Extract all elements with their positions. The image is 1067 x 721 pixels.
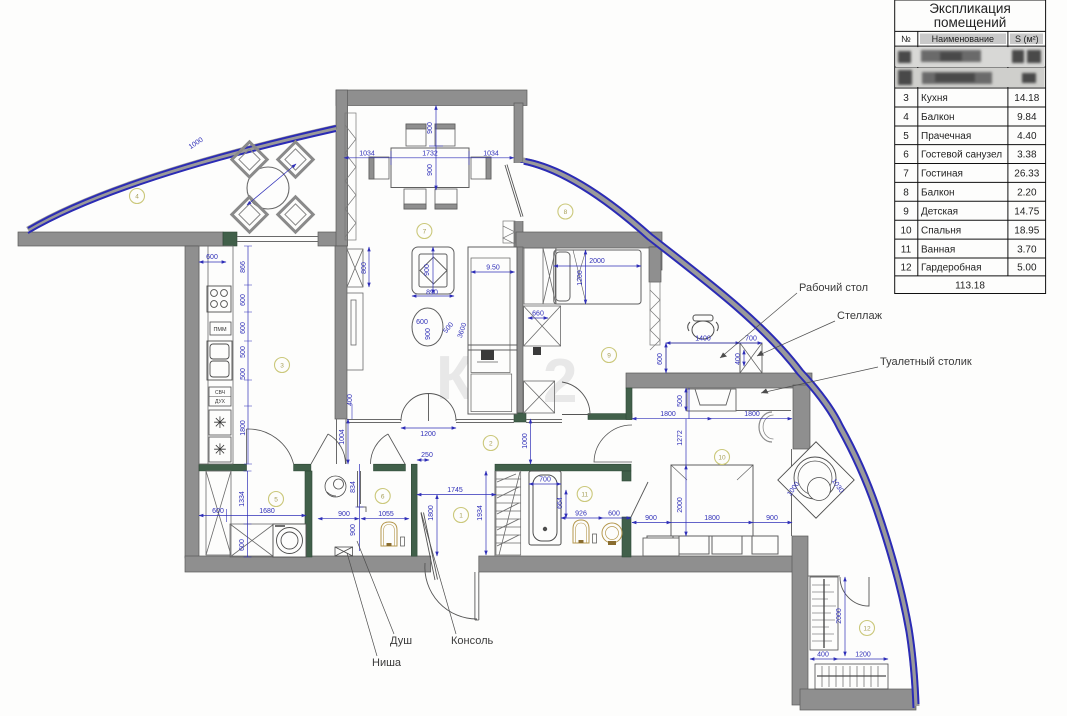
- svg-text:800: 800: [361, 262, 368, 274]
- svg-text:СВЧ: СВЧ: [215, 390, 225, 396]
- svg-text:1800: 1800: [428, 505, 435, 521]
- svg-text:ПММ: ПММ: [213, 327, 227, 333]
- svg-text:4: 4: [135, 194, 139, 201]
- svg-text:1200: 1200: [577, 270, 584, 286]
- svg-text:✳: ✳: [213, 415, 226, 432]
- svg-text:Наименование: Наименование: [932, 34, 994, 44]
- svg-text:2: 2: [489, 441, 493, 448]
- svg-text:900: 900: [350, 524, 357, 536]
- svg-text:7: 7: [903, 169, 909, 180]
- svg-text:Душ: Душ: [390, 635, 412, 647]
- svg-text:1272: 1272: [677, 430, 684, 446]
- svg-text:660: 660: [532, 311, 544, 318]
- svg-text:900: 900: [425, 328, 432, 340]
- svg-text:890: 890: [426, 290, 438, 297]
- svg-text:1400: 1400: [695, 336, 711, 343]
- svg-text:900: 900: [766, 515, 778, 522]
- svg-text:№: №: [901, 34, 911, 44]
- svg-text:12: 12: [863, 626, 871, 633]
- svg-text:Ванная: Ванная: [921, 245, 955, 256]
- svg-text:866: 866: [240, 261, 247, 273]
- svg-text:1680: 1680: [259, 508, 275, 515]
- svg-text:1800: 1800: [704, 515, 720, 522]
- svg-text:4.40: 4.40: [1017, 131, 1037, 142]
- svg-text:9: 9: [903, 207, 909, 218]
- svg-text:8: 8: [564, 209, 568, 216]
- svg-text:1334: 1334: [239, 491, 246, 507]
- svg-text:помещений: помещений: [934, 15, 1007, 30]
- svg-text:400: 400: [347, 394, 354, 406]
- svg-text:500: 500: [240, 368, 247, 380]
- svg-text:6: 6: [381, 494, 385, 501]
- svg-text:7: 7: [423, 229, 427, 236]
- svg-text:✳: ✳: [213, 442, 226, 459]
- svg-text:600: 600: [239, 539, 246, 551]
- svg-text:ДУХ: ДУХ: [215, 399, 226, 405]
- svg-text:10: 10: [718, 455, 726, 462]
- svg-text:Прачечная: Прачечная: [921, 131, 971, 142]
- svg-text:700: 700: [745, 336, 757, 343]
- svg-text:900: 900: [427, 122, 434, 134]
- svg-text:6: 6: [903, 150, 909, 161]
- svg-text:600: 600: [416, 319, 428, 326]
- svg-text:18.95: 18.95: [1014, 226, 1039, 237]
- svg-text:1800: 1800: [660, 411, 676, 418]
- svg-text:Консоль: Консоль: [451, 635, 494, 647]
- svg-text:S (м²): S (м²): [1015, 34, 1039, 44]
- svg-text:900: 900: [427, 164, 434, 176]
- svg-text:Гостевой санузел: Гостевой санузел: [921, 150, 1002, 161]
- svg-text:500: 500: [677, 395, 684, 407]
- svg-text:Стеллаж: Стеллаж: [837, 310, 883, 322]
- svg-text:1004: 1004: [339, 429, 346, 445]
- svg-text:26.33: 26.33: [1014, 169, 1039, 180]
- svg-text:1034: 1034: [483, 151, 499, 158]
- svg-text:900: 900: [338, 511, 350, 518]
- svg-text:5: 5: [903, 131, 909, 142]
- svg-text:400: 400: [735, 353, 742, 365]
- svg-text:2000: 2000: [836, 608, 843, 624]
- svg-text:1200: 1200: [420, 431, 436, 438]
- svg-text:12: 12: [900, 263, 912, 274]
- svg-text:4: 4: [903, 112, 909, 123]
- svg-text:9: 9: [607, 353, 611, 360]
- svg-text:14.75: 14.75: [1014, 207, 1039, 218]
- svg-text:834: 834: [350, 481, 357, 493]
- svg-text:600: 600: [240, 294, 247, 306]
- svg-text:600: 600: [657, 353, 664, 365]
- svg-text:3.70: 3.70: [1017, 245, 1037, 256]
- svg-text:2000: 2000: [589, 258, 605, 265]
- svg-text:926: 926: [575, 511, 587, 518]
- svg-text:3: 3: [903, 93, 909, 104]
- svg-text:2.20: 2.20: [1017, 188, 1037, 199]
- svg-text:1034: 1034: [359, 151, 375, 158]
- svg-text:Балкон: Балкон: [921, 112, 955, 123]
- svg-text:10: 10: [900, 226, 912, 237]
- svg-text:900: 900: [424, 264, 431, 276]
- svg-text:1745: 1745: [447, 487, 463, 494]
- svg-text:600: 600: [240, 322, 247, 334]
- svg-text:113.18: 113.18: [955, 281, 985, 292]
- svg-text:2000: 2000: [677, 497, 684, 513]
- svg-text:5.00: 5.00: [1017, 263, 1037, 274]
- svg-text:9.50: 9.50: [486, 265, 500, 272]
- svg-text:Рабочий стол: Рабочий стол: [799, 282, 868, 294]
- svg-text:Детская: Детская: [921, 207, 958, 218]
- svg-text:3.38: 3.38: [1017, 150, 1037, 161]
- svg-text:600: 600: [212, 508, 224, 515]
- svg-text:5: 5: [274, 497, 278, 504]
- svg-text:250: 250: [421, 452, 433, 459]
- svg-text:Балкон: Балкон: [921, 188, 955, 199]
- svg-text:3: 3: [280, 363, 284, 370]
- svg-text:1: 1: [459, 513, 463, 520]
- svg-text:1800: 1800: [744, 411, 760, 418]
- svg-text:11: 11: [581, 492, 588, 499]
- svg-text:8: 8: [903, 188, 909, 199]
- svg-text:1000: 1000: [522, 433, 529, 449]
- svg-text:600: 600: [206, 254, 218, 261]
- svg-text:900: 900: [645, 515, 657, 522]
- svg-text:1055: 1055: [378, 511, 394, 518]
- svg-text:1800: 1800: [240, 420, 247, 436]
- svg-text:Ниша: Ниша: [372, 657, 402, 669]
- svg-text:400: 400: [817, 652, 829, 659]
- svg-text:Спальня: Спальня: [921, 226, 961, 237]
- svg-text:664: 664: [557, 497, 564, 509]
- svg-text:1732: 1732: [422, 151, 438, 158]
- svg-text:600: 600: [608, 511, 620, 518]
- svg-text:Туалетный столик: Туалетный столик: [880, 356, 972, 368]
- svg-text:1934: 1934: [477, 505, 484, 521]
- svg-text:700: 700: [539, 477, 551, 484]
- svg-text:500: 500: [240, 346, 247, 358]
- svg-text:14.18: 14.18: [1014, 93, 1039, 104]
- svg-text:11: 11: [901, 245, 912, 256]
- svg-text:1200: 1200: [855, 652, 871, 659]
- svg-text:Кухня: Кухня: [921, 93, 948, 104]
- svg-text:Гостиная: Гостиная: [921, 169, 963, 180]
- svg-text:Гардеробная: Гардеробная: [921, 262, 982, 274]
- svg-text:Экспликация: Экспликация: [929, 1, 1011, 16]
- svg-text:9.84: 9.84: [1017, 112, 1037, 123]
- svg-text:2: 2: [543, 347, 577, 416]
